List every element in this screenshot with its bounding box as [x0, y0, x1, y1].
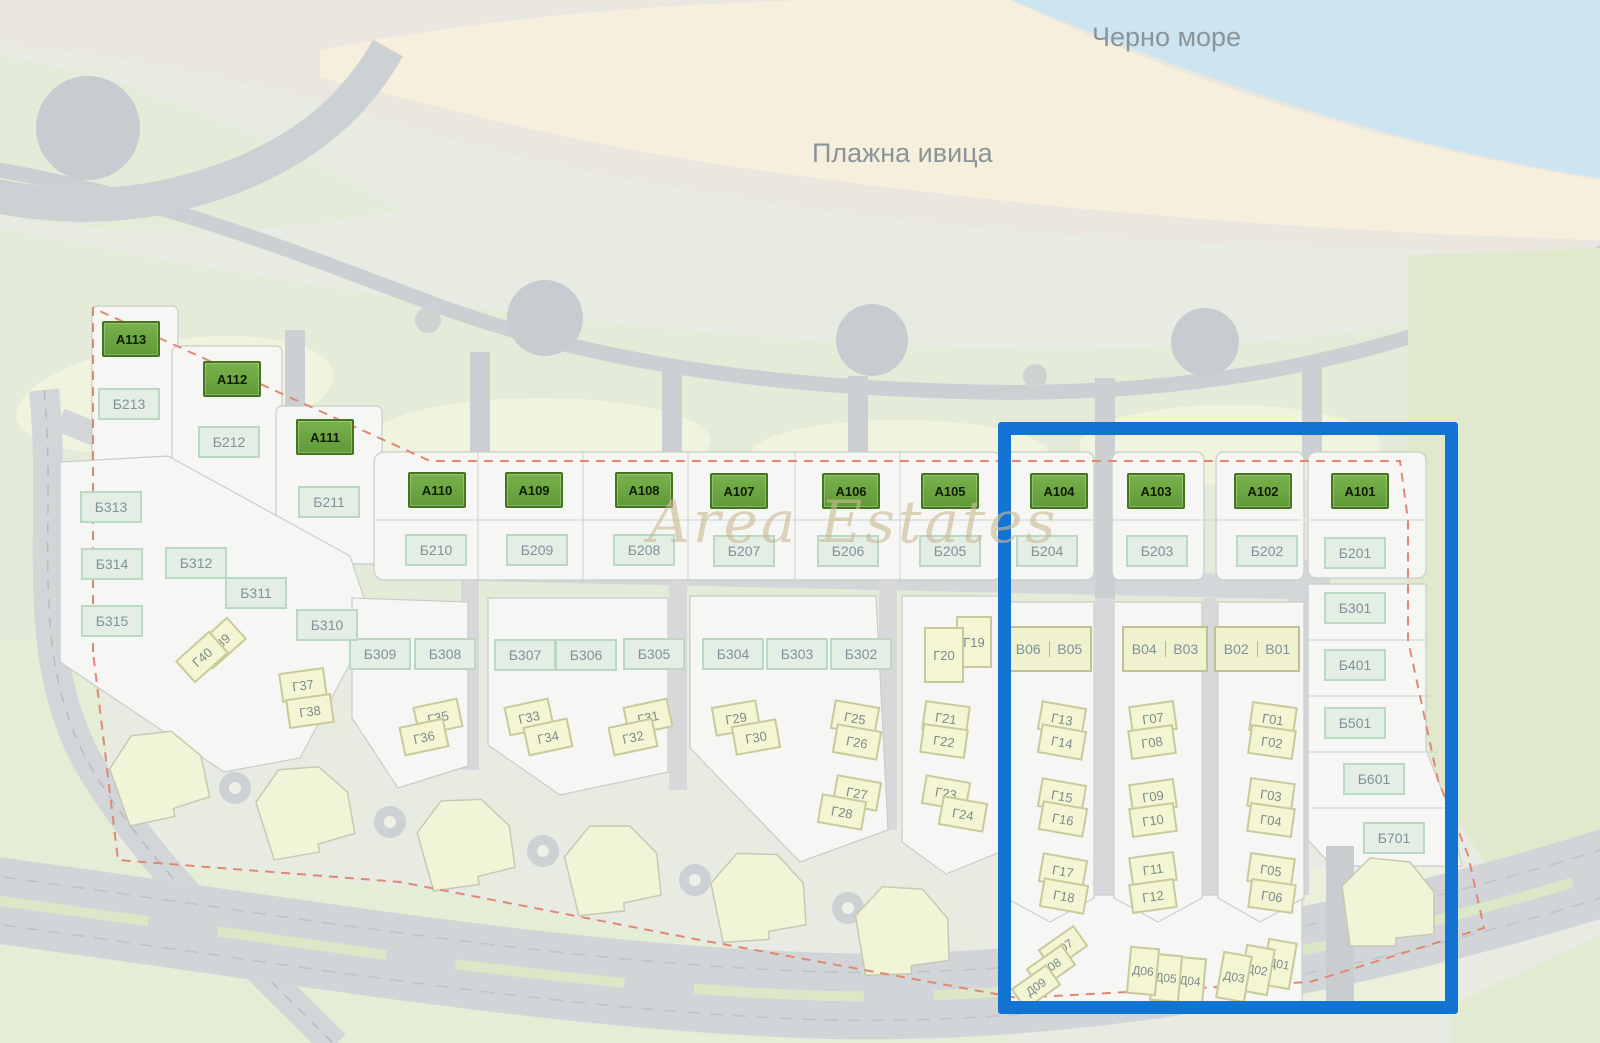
- building-Б311[interactable]: Б311: [225, 577, 287, 609]
- highlighted-phase-rectangle: [998, 422, 1458, 1014]
- lot-Г30[interactable]: Г30: [731, 718, 782, 756]
- building-Б308[interactable]: Б308: [414, 638, 476, 670]
- building-Б213[interactable]: Б213: [98, 388, 160, 420]
- lot-Г32[interactable]: Г32: [607, 718, 658, 757]
- building-Б312[interactable]: Б312: [165, 547, 227, 579]
- beach-label: Плажна ивица: [812, 138, 993, 169]
- building-Б310[interactable]: Б310: [296, 609, 358, 641]
- watermark: Area Estates: [648, 488, 968, 556]
- building-Б211[interactable]: Б211: [298, 486, 360, 518]
- lot-Г38[interactable]: Г38: [285, 693, 335, 729]
- lot-Г36[interactable]: Г36: [398, 718, 449, 757]
- building-Б313[interactable]: Б313: [80, 491, 142, 523]
- building-A112[interactable]: A112: [203, 361, 261, 397]
- sea-label: Черно море: [1092, 22, 1241, 53]
- site-plan-map: A113A112A111A110A109A108A107A106A105A104…: [0, 0, 1600, 1043]
- building-Б210[interactable]: Б210: [405, 534, 467, 566]
- building-Б302[interactable]: Б302: [830, 638, 892, 670]
- building-Б305[interactable]: Б305: [623, 638, 685, 670]
- building-A110[interactable]: A110: [408, 472, 466, 508]
- lot-Г20[interactable]: Г20: [924, 627, 964, 683]
- building-A111[interactable]: A111: [296, 419, 354, 455]
- building-Б315[interactable]: Б315: [81, 605, 143, 637]
- building-Б209[interactable]: Б209: [506, 534, 568, 566]
- lot-Г24[interactable]: Г24: [938, 795, 989, 833]
- building-Б309[interactable]: Б309: [349, 638, 411, 670]
- building-A113[interactable]: A113: [102, 321, 160, 357]
- building-A109[interactable]: A109: [505, 472, 563, 508]
- lot-Г22[interactable]: Г22: [919, 723, 969, 759]
- building-Б304[interactable]: Б304: [702, 638, 764, 670]
- building-Б212[interactable]: Б212: [198, 426, 260, 458]
- building-Б306[interactable]: Б306: [555, 639, 617, 671]
- building-Б303[interactable]: Б303: [766, 638, 828, 670]
- building-Б307[interactable]: Б307: [494, 639, 556, 671]
- building-Б314[interactable]: Б314: [81, 548, 143, 580]
